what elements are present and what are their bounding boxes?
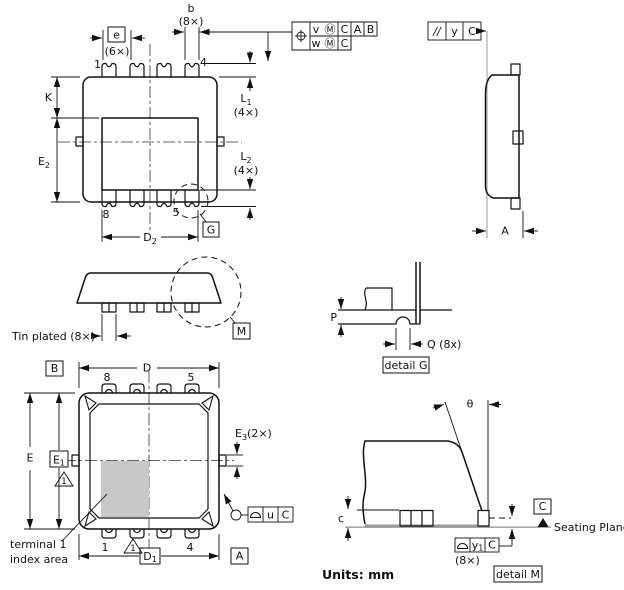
detail-g-title: detail G bbox=[385, 359, 428, 372]
terminal-1-index-area bbox=[101, 461, 149, 517]
u-frame-datum: C bbox=[282, 508, 290, 521]
seating-plane-label: Seating Plane bbox=[554, 521, 624, 534]
mmc-icon: Ⓜ bbox=[325, 37, 336, 50]
dim-a-label: A bbox=[501, 225, 509, 238]
dim-d1: D1 bbox=[79, 534, 219, 564]
detail-m-view: θ c y1 C (8×) C Seating Plane detail M bbox=[338, 398, 624, 583]
bottom-view-bottom-pins bbox=[102, 529, 199, 538]
pin-1-label: 1 bbox=[94, 58, 101, 71]
pin-8-label: 8 bbox=[103, 208, 110, 221]
units-note: Units: mm bbox=[322, 567, 394, 582]
par-datum: C bbox=[468, 25, 476, 38]
position-symbol-icon bbox=[295, 30, 307, 42]
pos-row1-v: v bbox=[313, 23, 320, 36]
detail-m-circle bbox=[171, 257, 241, 327]
dim-p: P bbox=[330, 297, 341, 337]
svg-text:1: 1 bbox=[130, 544, 135, 554]
dim-e2: E2 bbox=[38, 118, 80, 202]
pin-1-label: 1 bbox=[102, 541, 109, 554]
y1-frame-count: (8×) bbox=[455, 554, 480, 567]
u-frame-tol: u bbox=[267, 508, 274, 521]
side-view-bottom-tab bbox=[511, 198, 520, 209]
profile-y1-frame: y1 C (8×) bbox=[455, 538, 499, 567]
profile-u-frame: u C bbox=[224, 494, 293, 522]
position-tolerance-frame: v Ⓜ C A B w Ⓜ C bbox=[292, 22, 377, 50]
parallelism-symbol-icon: // bbox=[432, 25, 442, 38]
bottom-terminals bbox=[102, 190, 199, 207]
pin-8-label: 8 bbox=[104, 371, 111, 384]
pos-row1-datum3: B bbox=[367, 23, 375, 36]
pin-5-label: 5 bbox=[188, 371, 195, 384]
dim-b-count: (8×) bbox=[179, 15, 204, 28]
detail-g-view: P Q (8x) detail G bbox=[330, 262, 461, 373]
elevation-body bbox=[77, 273, 221, 303]
top-terminals bbox=[102, 64, 199, 78]
dim-l2-count: (4×) bbox=[234, 164, 259, 177]
dim-y1 bbox=[499, 504, 512, 546]
y1-frame-tol: y1 bbox=[472, 538, 484, 552]
drawing-canvas: 1 4 8 5 b (8×) e (6×) K bbox=[0, 0, 624, 590]
dim-theta: θ bbox=[433, 398, 501, 511]
dim-e-label: e bbox=[113, 29, 120, 42]
detail-m-title: detail M bbox=[496, 568, 540, 581]
terminal-bump bbox=[338, 317, 416, 324]
detail-m-terminals bbox=[400, 511, 433, 527]
break-line bbox=[365, 288, 367, 310]
pos-row1-datum2: A bbox=[354, 23, 362, 36]
dim-e1: E1 bbox=[50, 393, 68, 529]
profile-of-surface-icon bbox=[251, 513, 261, 518]
leader-balloon bbox=[231, 510, 241, 520]
dim-k-label: K bbox=[45, 91, 53, 104]
pad-cross-section bbox=[366, 288, 392, 310]
dim-c-label: c bbox=[338, 512, 344, 525]
index-note-line1: terminal 1 bbox=[10, 538, 66, 551]
pos-row1-datum1: C bbox=[341, 23, 349, 36]
tin-plated-callout: Tin plated (8×) bbox=[11, 314, 131, 343]
par-tol: y bbox=[451, 25, 458, 38]
datum-c-label: C bbox=[539, 500, 547, 513]
note-flag-bottom: 1 bbox=[124, 539, 142, 554]
dim-e-count: (6×) bbox=[105, 45, 130, 58]
svg-text:1: 1 bbox=[61, 477, 66, 487]
dim-c: c bbox=[338, 496, 399, 541]
dim-e3: E3(2×) bbox=[227, 427, 272, 479]
index-note-line2: index area bbox=[10, 553, 68, 566]
profile-of-surface-icon bbox=[458, 544, 468, 549]
note-flag-left: 1 bbox=[55, 472, 73, 487]
side-view-mid-tab bbox=[513, 131, 523, 144]
side-elevation-view: M Tin plated (8×) bbox=[11, 257, 250, 343]
pin-4-label: 4 bbox=[187, 541, 194, 554]
dim-l1-count: (4×) bbox=[234, 106, 259, 119]
index-area-callout: terminal 1 index area bbox=[10, 494, 107, 566]
dim-e2-label: E2 bbox=[38, 155, 50, 170]
dim-b: b (8×) bbox=[172, 2, 292, 61]
dim-b-label: b bbox=[188, 2, 195, 15]
top-view: 1 4 8 5 b (8×) e (6×) K bbox=[38, 2, 292, 246]
dim-l1-label: L1 bbox=[240, 92, 251, 107]
side-view: A bbox=[472, 31, 538, 238]
dim-q: Q (8x) bbox=[383, 328, 461, 351]
elevation-terminals bbox=[102, 303, 199, 312]
dim-l1: L1 (4×) bbox=[201, 51, 258, 119]
dim-a: A bbox=[472, 211, 538, 238]
datum-b-label: B bbox=[51, 362, 59, 375]
datum-a-label: A bbox=[236, 550, 244, 563]
bottom-view: 8 5 1 4 B D E E1 1 bbox=[10, 361, 293, 566]
bottom-view-top-pins bbox=[102, 384, 199, 393]
dim-p-label: P bbox=[330, 311, 337, 324]
dim-d-label: D bbox=[143, 362, 151, 375]
dim-e-label: E bbox=[27, 452, 34, 465]
dim-theta-label: θ bbox=[467, 398, 474, 411]
pos-row2-datum: C bbox=[341, 37, 349, 50]
parallelism-frame: // y C bbox=[428, 22, 486, 40]
dim-l2-label: L2 bbox=[240, 150, 251, 165]
tin-plated-label: Tin plated (8×) bbox=[11, 330, 95, 343]
pos-row2-w: w bbox=[312, 37, 321, 50]
side-view-body bbox=[486, 75, 520, 198]
detail-m-ref-label: M bbox=[237, 325, 247, 338]
dim-e3-label: E3(2×) bbox=[235, 427, 272, 442]
dim-e: e (6×) bbox=[90, 27, 145, 60]
dim-q-label: Q (8x) bbox=[427, 338, 461, 351]
dim-d2-label: D2 bbox=[143, 231, 157, 246]
y1-frame-datum: C bbox=[488, 538, 496, 551]
dim-k: K bbox=[45, 77, 99, 118]
dim-l2: L2 (4×) bbox=[200, 150, 258, 220]
side-view-top-tab bbox=[511, 64, 520, 75]
right-tie-bar bbox=[217, 137, 224, 146]
pin-4-label: 4 bbox=[200, 56, 207, 69]
left-tie-bar bbox=[76, 137, 83, 146]
seating-plane-datum-icon bbox=[538, 518, 549, 527]
detail-g-ref-label: G bbox=[207, 224, 216, 237]
mmc-icon: Ⓜ bbox=[325, 23, 336, 36]
package-outline-drawing: 1 4 8 5 b (8×) e (6×) K bbox=[0, 0, 624, 590]
corner-terminal bbox=[478, 511, 489, 527]
